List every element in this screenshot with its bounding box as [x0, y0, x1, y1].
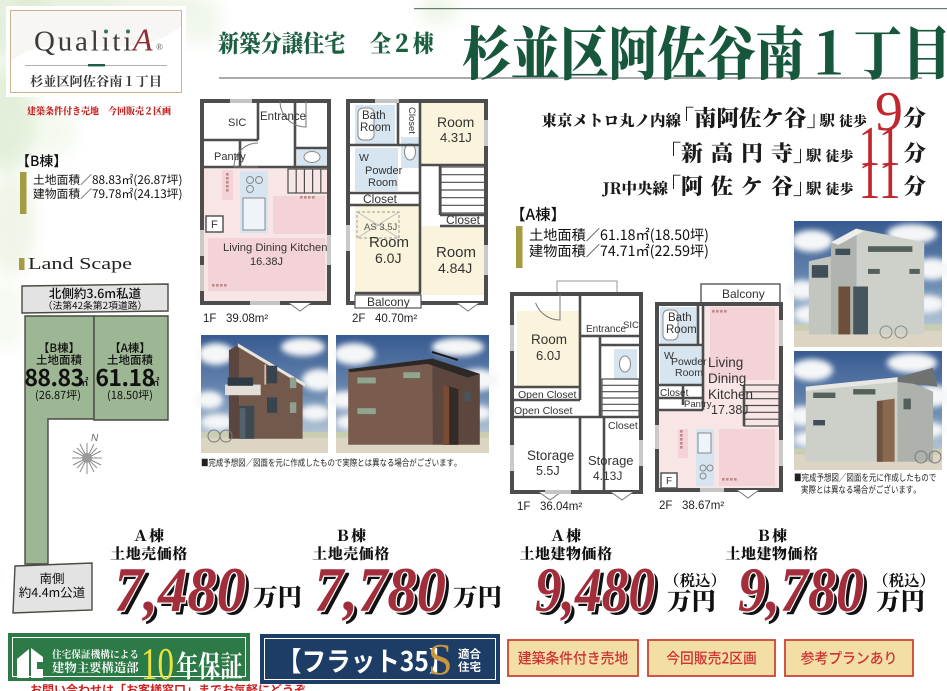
svg-text:Closet: Closet — [446, 213, 481, 227]
svg-text:Storage: Storage — [588, 453, 634, 468]
svg-text:Dining: Dining — [708, 371, 746, 386]
svg-text:4.13J: 4.13J — [593, 469, 622, 483]
svg-text:W: W — [359, 152, 369, 164]
svg-text:9,780: 9,780 — [738, 554, 864, 625]
svg-text:Bath: Bath — [668, 312, 692, 324]
svg-text:Closet: Closet — [363, 192, 398, 206]
svg-text:2F 38.67m²: 2F 38.67m² — [659, 500, 724, 512]
svg-text:4.84J: 4.84J — [438, 260, 472, 276]
svg-text:Room: Room — [531, 332, 567, 347]
svg-text:Entrance: Entrance — [260, 111, 306, 123]
svg-text:1F 36.04m²: 1F 36.04m² — [517, 501, 582, 513]
svg-text:Room: Room — [437, 114, 474, 130]
svg-text:Living Dining Kitchen: Living Dining Kitchen — [223, 242, 327, 254]
svg-text:5.5J: 5.5J — [536, 464, 560, 478]
svg-text:7,480: 7,480 — [114, 554, 246, 625]
svg-text:6.0J: 6.0J — [536, 348, 561, 363]
svg-text:Room: Room — [368, 177, 397, 189]
svg-text:N: N — [91, 433, 99, 444]
svg-text:Room: Room — [675, 367, 703, 379]
svg-text:F: F — [666, 476, 672, 487]
svg-text:Kitchen: Kitchen — [708, 387, 753, 402]
svg-text:9,480: 9,480 — [535, 554, 655, 625]
svg-text:Balcony: Balcony — [367, 295, 410, 309]
svg-text:17.38J: 17.38J — [711, 403, 749, 417]
svg-text:Room: Room — [369, 234, 409, 251]
svg-text:Pantry: Pantry — [214, 151, 246, 163]
svg-text:Powder: Powder — [365, 165, 403, 177]
svg-text:Qualıtı: Qualıtı — [34, 26, 134, 58]
svg-text:1F 39.08m²: 1F 39.08m² — [203, 313, 268, 325]
svg-text:Closet: Closet — [406, 107, 417, 134]
svg-text:10: 10 — [141, 638, 174, 689]
svg-text:Open Closet: Open Closet — [518, 389, 576, 401]
svg-text:Storage: Storage — [527, 448, 574, 463]
svg-text:4.31J: 4.31J — [440, 130, 472, 145]
svg-text:Living: Living — [708, 355, 743, 370]
svg-text:Room: Room — [666, 324, 697, 336]
svg-text:Closet: Closet — [660, 388, 689, 399]
svg-text:Room: Room — [436, 244, 476, 261]
svg-text:7,780: 7,780 — [314, 554, 446, 625]
svg-text:Land Scape: Land Scape — [28, 254, 132, 273]
svg-text:Balcony: Balcony — [722, 287, 765, 301]
svg-text:11: 11 — [859, 149, 901, 211]
svg-text:16.38J: 16.38J — [250, 256, 283, 268]
svg-text:A: A — [131, 22, 153, 58]
svg-text:Closet: Closet — [608, 420, 638, 432]
svg-text:SIC: SIC — [228, 117, 246, 129]
svg-text:S: S — [428, 635, 452, 684]
svg-text:2F 40.70m²: 2F 40.70m² — [352, 313, 417, 325]
svg-text:Open Closet: Open Closet — [514, 405, 572, 417]
svg-text:6.0J: 6.0J — [375, 250, 401, 266]
svg-text:AS 3.5J: AS 3.5J — [364, 222, 398, 233]
svg-text:SIC: SIC — [623, 320, 639, 331]
svg-text:Entrance: Entrance — [586, 324, 626, 335]
svg-text:®: ® — [156, 42, 163, 52]
svg-text:Bath: Bath — [362, 110, 386, 122]
svg-text:Room: Room — [360, 122, 391, 134]
svg-text:F: F — [211, 219, 218, 231]
